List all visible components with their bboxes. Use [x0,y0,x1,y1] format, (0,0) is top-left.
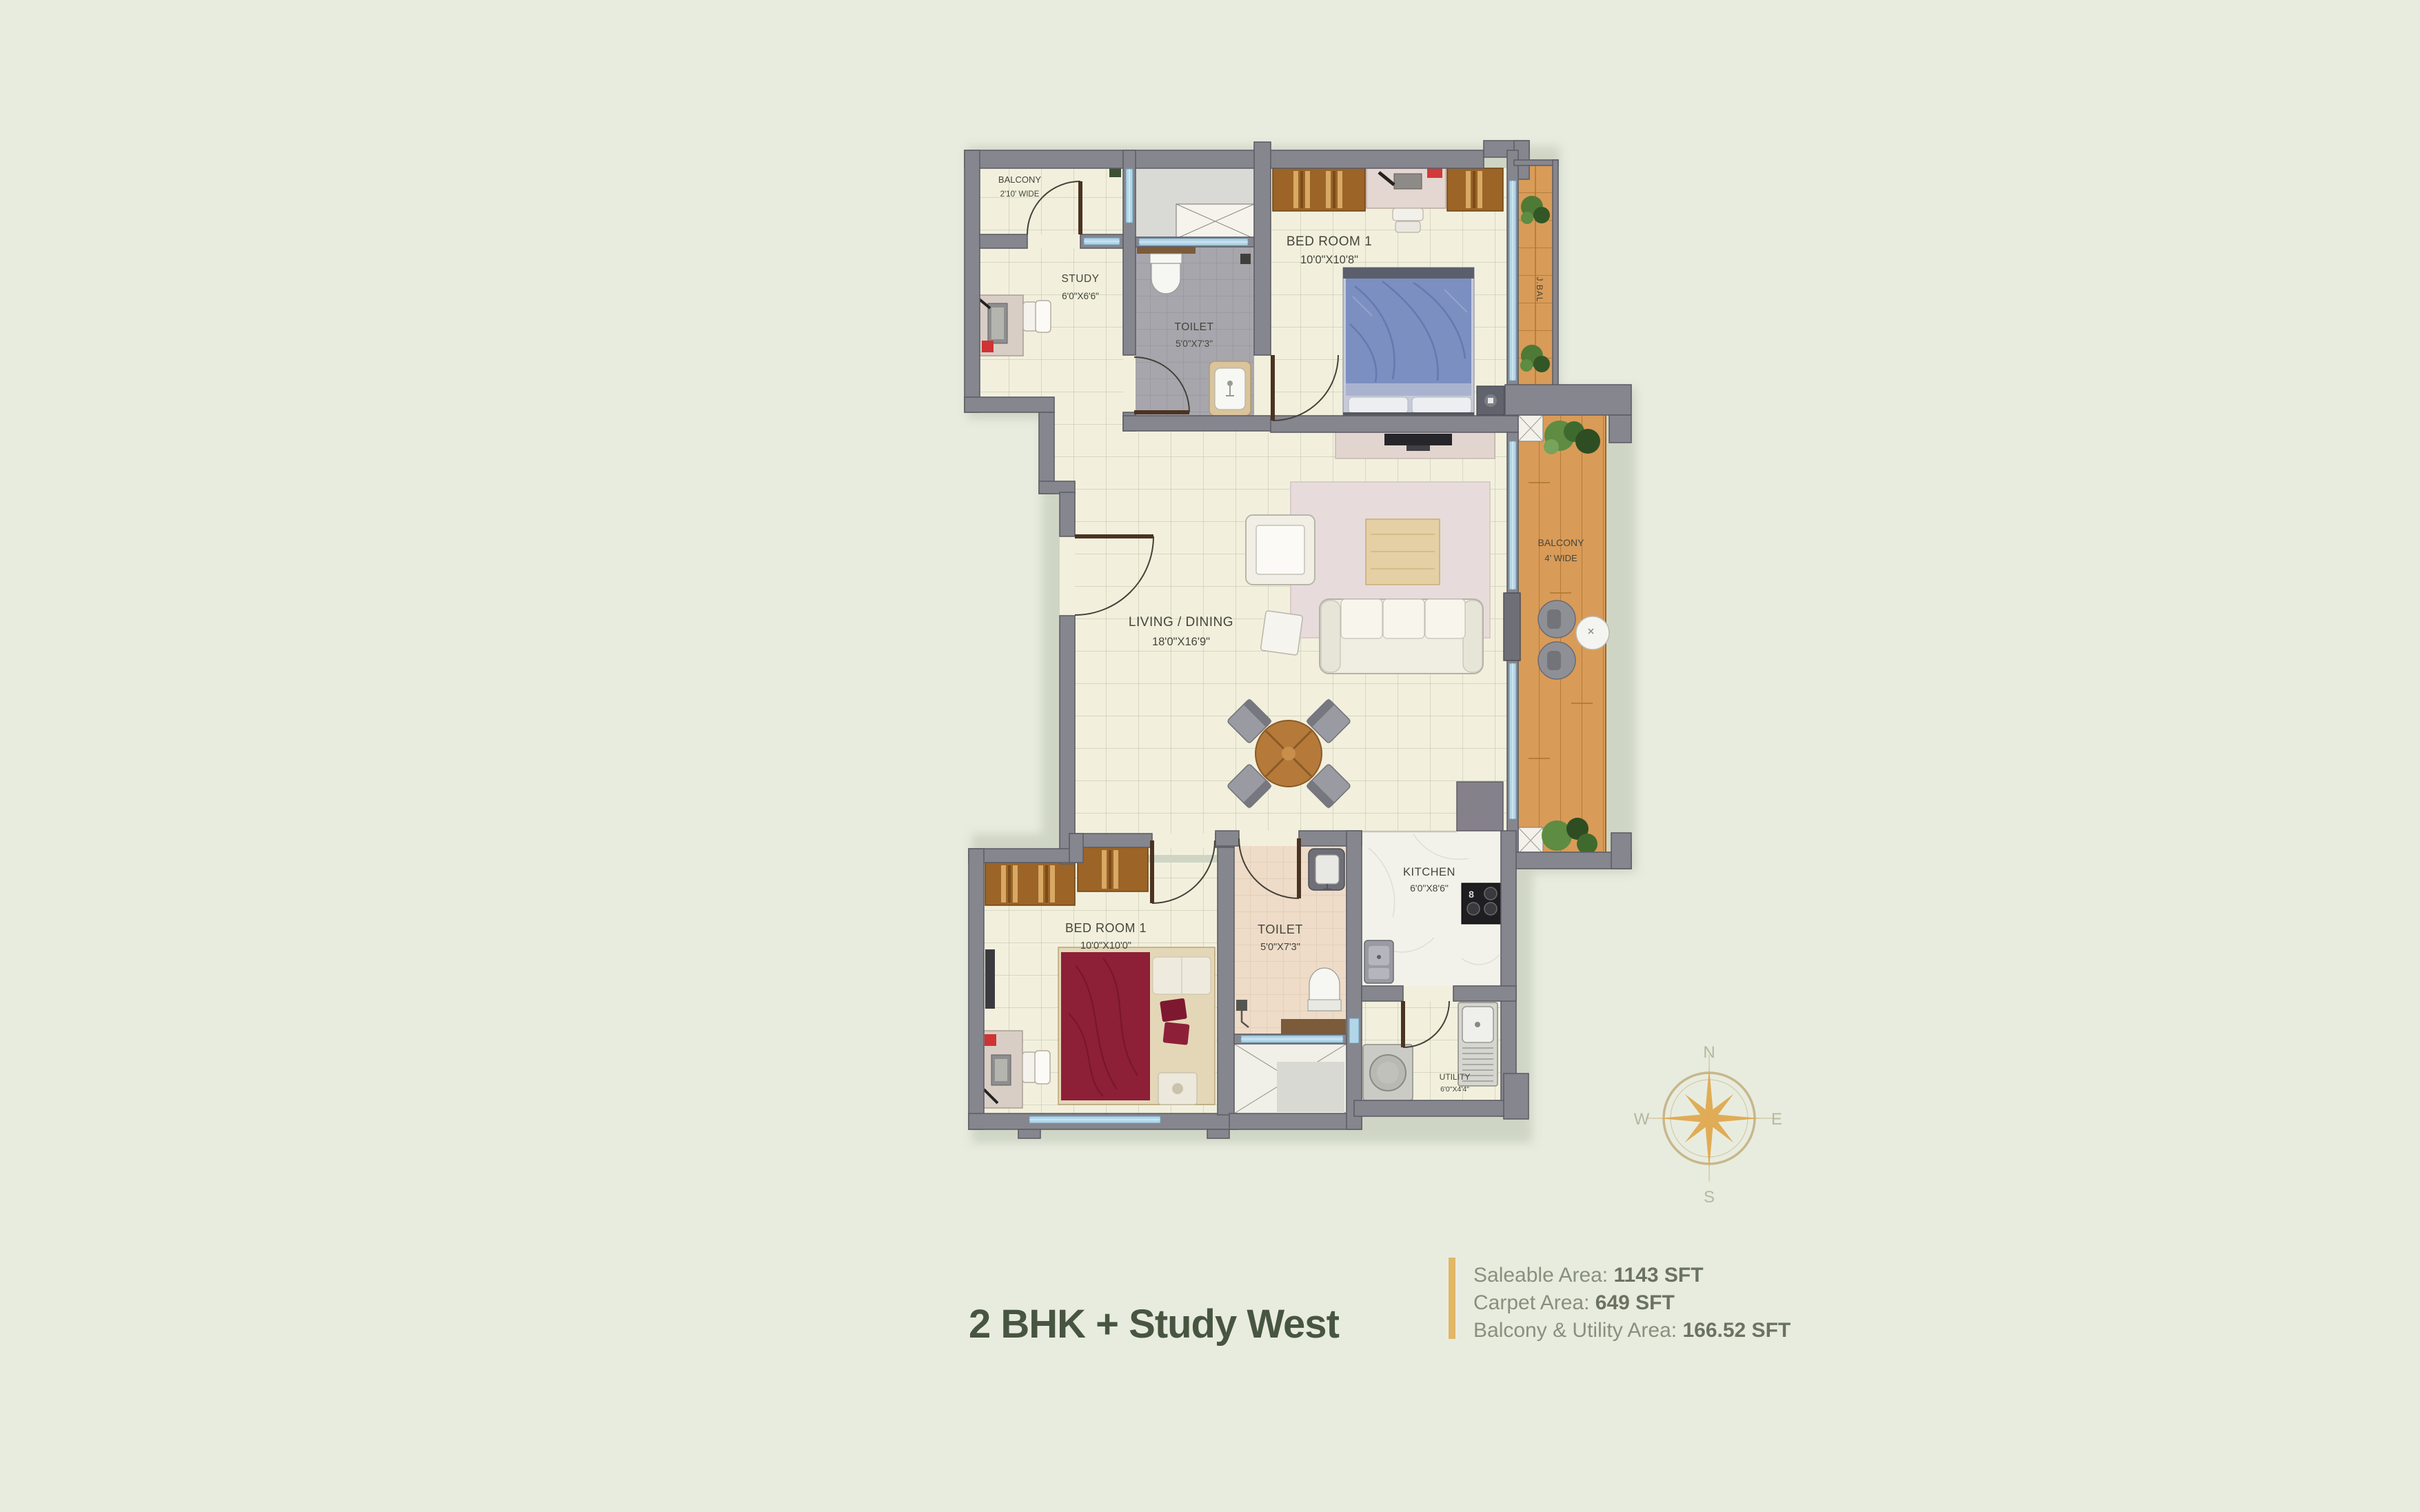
svg-text:6'0"X8'6": 6'0"X8'6" [1410,883,1449,894]
svg-text:STUDY: STUDY [1061,273,1099,285]
svg-text:10'0"X10'0": 10'0"X10'0" [1080,940,1131,951]
svg-text:BALCONY: BALCONY [1538,537,1585,548]
svg-text:BALCONY: BALCONY [998,174,1041,185]
svg-text:10'0"X10'8": 10'0"X10'8" [1300,254,1358,266]
svg-text:TOILET: TOILET [1175,321,1214,333]
svg-text:6'0"X6'6": 6'0"X6'6" [1062,291,1099,301]
svg-text:TOILET: TOILET [1258,923,1303,936]
svg-text:6'0"X4'4": 6'0"X4'4" [1440,1085,1469,1093]
svg-text:8: 8 [1469,889,1474,900]
svg-text:BED ROOM 1: BED ROOM 1 [1065,921,1147,935]
svg-text:Carpet Area: 649 SFT: Carpet Area: 649 SFT [1473,1291,1675,1314]
svg-text:4' WIDE: 4' WIDE [1544,553,1577,563]
svg-text:LIVING / DINING: LIVING / DINING [1129,615,1233,629]
svg-text:W: W [1634,1110,1650,1129]
svg-text:BED ROOM 1: BED ROOM 1 [1287,234,1372,249]
svg-text:18'0"X16'9": 18'0"X16'9" [1152,636,1210,648]
svg-text:J.BAL: J.BAL [1535,276,1544,302]
svg-text:Saleable Area: 1143 SFT: Saleable Area: 1143 SFT [1473,1264,1704,1287]
svg-text:N: N [1703,1043,1715,1062]
svg-text:UTILITY: UTILITY [1440,1072,1471,1082]
svg-text:2 BHK + Study West: 2 BHK + Study West [969,1302,1340,1347]
svg-text:KITCHEN: KITCHEN [1403,866,1455,878]
svg-text:S: S [1704,1188,1715,1207]
svg-text:2'10' WIDE: 2'10' WIDE [1000,190,1040,199]
svg-text:5'0"X7'3": 5'0"X7'3" [1176,339,1213,349]
svg-text:5'0"X7'3": 5'0"X7'3" [1260,942,1300,953]
svg-text:Balcony & Utility Area: 166.52: Balcony & Utility Area: 166.52 SFT [1473,1319,1791,1342]
svg-text:E: E [1771,1110,1782,1129]
